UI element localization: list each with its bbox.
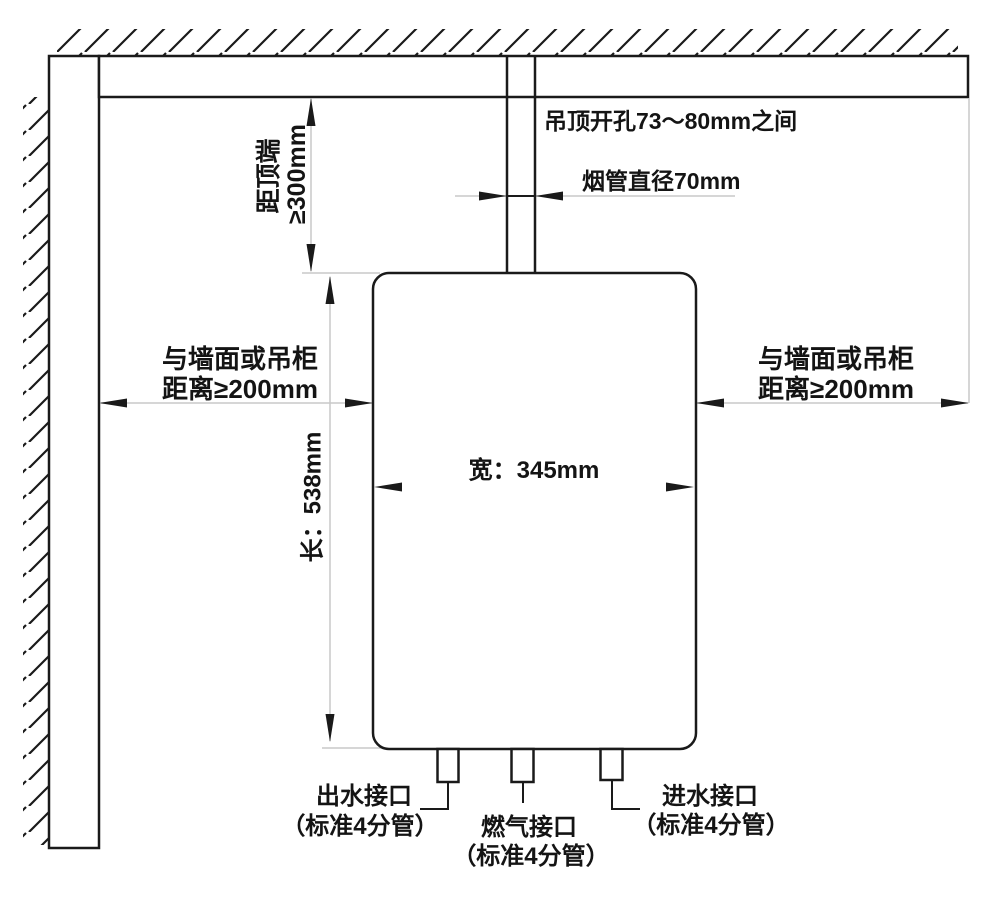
label-ceiling-hole: 吊顶开孔73～80mm之间 [544, 108, 797, 134]
diagram-canvas: 吊顶开孔73～80mm之间 烟管直径70mm 距顶端 ≥300mm 与墙面或吊柜… [0, 0, 1000, 900]
outlet-leader-line [420, 783, 448, 809]
gas-stub [512, 749, 534, 782]
ceiling-slab [99, 56, 968, 97]
label-top-clearance-line2: ≥300mm [283, 124, 311, 224]
outlet-stub [438, 749, 459, 782]
label-right-clearance-line2: 距离≥200mm [758, 374, 914, 404]
label-flue-diameter: 烟管直径70mm [582, 168, 740, 194]
label-outlet: 出水接口 [316, 783, 412, 810]
inlet-leader-line [612, 781, 640, 809]
installation-diagram: 吊顶开孔73～80mm之间 烟管直径70mm 距顶端 ≥300mm 与墙面或吊柜… [0, 0, 1000, 900]
wall-hatch [23, 97, 49, 845]
label-inlet: 进水接口 [662, 783, 758, 810]
inlet-stub [601, 749, 623, 780]
label-top-clearance-line1: 距顶端 [255, 138, 283, 213]
label-inlet-sub: （标准4分管） [632, 811, 789, 839]
label-body-width: 宽：345mm [469, 456, 600, 484]
left-wall [49, 56, 99, 848]
label-outlet-sub: （标准4分管） [281, 812, 438, 840]
ceiling-hatch [57, 29, 958, 56]
label-right-clearance-line1: 与墙面或吊柜 [758, 344, 914, 374]
water-heater-body [373, 273, 696, 749]
label-gas: 燃气接口 [481, 813, 577, 841]
label-left-clearance-line1: 与墙面或吊柜 [162, 344, 318, 374]
label-left-clearance-line2: 距离≥200mm [162, 374, 318, 404]
label-gas-sub: （标准4分管） [452, 842, 609, 870]
label-body-height: 长：538mm [300, 432, 327, 563]
